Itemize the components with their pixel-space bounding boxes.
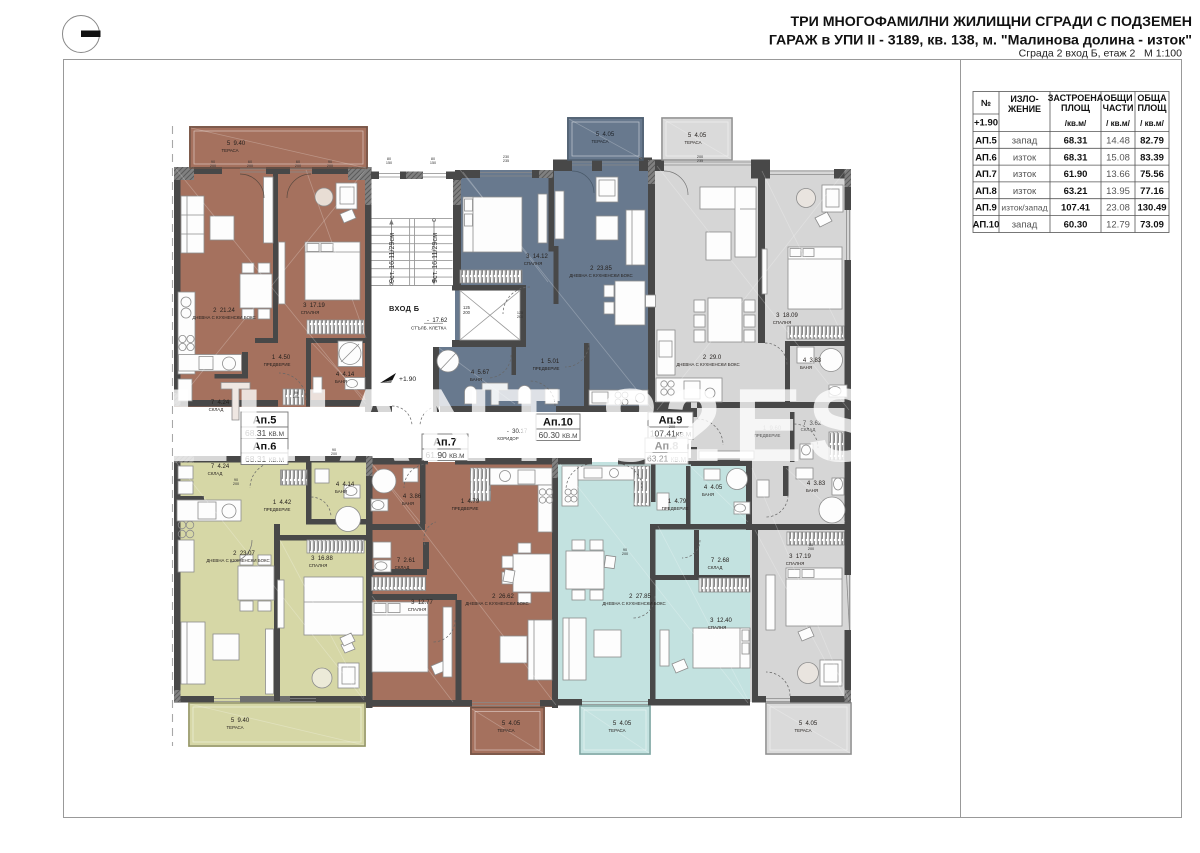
svg-text:2 23.07: 2 23.07: [233, 551, 255, 557]
svg-text:СТЪЛБ. КЛЕТКА: СТЪЛБ. КЛЕТКА: [411, 326, 447, 331]
svg-text:14.48: 14.48: [1106, 136, 1130, 147]
svg-text:82.79: 82.79: [1140, 136, 1164, 147]
svg-text:200: 200: [327, 164, 333, 168]
svg-text:5 4.05: 5 4.05: [799, 721, 818, 727]
svg-text:150: 150: [386, 161, 392, 165]
svg-text:60.30: 60.30: [1064, 220, 1088, 231]
svg-text:изток: изток: [1013, 169, 1037, 180]
svg-text:235: 235: [697, 159, 703, 163]
svg-text:ПЛОЩ: ПЛОЩ: [1061, 103, 1091, 113]
svg-text:1 4.50: 1 4.50: [272, 355, 291, 361]
svg-text:63.21: 63.21: [1064, 186, 1088, 197]
svg-text:ТЕРАСА: ТЕРАСА: [497, 728, 514, 733]
svg-text:СПАЛНЯ: СПАЛНЯ: [786, 561, 805, 566]
svg-text:3 17.19: 3 17.19: [789, 554, 811, 560]
svg-text:ПРЕДВЕРИЕ: ПРЕДВЕРИЕ: [264, 507, 291, 512]
svg-text:3 16.88: 3 16.88: [311, 556, 333, 562]
svg-text:2 29.0: 2 29.0: [703, 355, 722, 361]
svg-text:ALLIANT: ALLIANT: [86, 368, 566, 484]
svg-text:200: 200: [517, 315, 523, 319]
svg-text:ДНЕВНА С КУХНЕНСКИ БОКС: ДНЕВНА С КУХНЕНСКИ БОКС: [192, 315, 255, 320]
svg-text:ТЕРАСА: ТЕРАСА: [608, 728, 625, 733]
svg-text:13.95: 13.95: [1106, 186, 1130, 197]
svg-text:12.79: 12.79: [1106, 220, 1130, 231]
svg-text:ОБЩИ: ОБЩИ: [1103, 93, 1132, 103]
svg-text:АП.8: АП.8: [975, 186, 997, 197]
svg-text:ЗАСТРОЕНА: ЗАСТРОЕНА: [1048, 93, 1104, 103]
svg-text:200: 200: [295, 164, 301, 168]
svg-text:ГАРАЖ в УПИ II - 3189, кв. 138: ГАРАЖ в УПИ II - 3189, кв. 138, м. "Мали…: [769, 33, 1192, 49]
svg-text:200: 200: [622, 552, 628, 556]
svg-text:+1.90: +1.90: [974, 118, 998, 129]
svg-text:68.31: 68.31: [1064, 152, 1088, 163]
svg-text:ЧАСТИ: ЧАСТИ: [1103, 103, 1134, 113]
svg-text:АП.9: АП.9: [975, 203, 997, 214]
svg-text:ТЕРАСА: ТЕРАСА: [684, 140, 701, 145]
svg-text:2 27.85: 2 27.85: [629, 594, 651, 600]
svg-text:83.39: 83.39: [1140, 152, 1164, 163]
svg-text:1 4.42: 1 4.42: [273, 500, 292, 506]
svg-text:2 23.85: 2 23.85: [590, 266, 612, 272]
svg-text:СПАЛНЯ: СПАЛНЯ: [408, 607, 427, 612]
svg-text:15.08: 15.08: [1106, 152, 1130, 163]
svg-text:ПРЕДВЕРИЕ: ПРЕДВЕРИЕ: [452, 506, 479, 511]
svg-text:СПАЛНЯ: СПАЛНЯ: [301, 310, 320, 315]
svg-text:7 2.68: 7 2.68: [711, 558, 730, 564]
svg-text:1 5.01: 1 5.01: [541, 359, 560, 365]
svg-text:изток: изток: [1013, 186, 1037, 197]
svg-text:2 26.62: 2 26.62: [492, 594, 514, 600]
svg-text:235: 235: [503, 159, 509, 163]
svg-text:73.09: 73.09: [1140, 220, 1164, 231]
svg-text:ДНЕВНА С КУХНЕНСКИ БОКС: ДНЕВНА С КУХНЕНСКИ БОКС: [676, 362, 739, 367]
svg-text:23.08: 23.08: [1106, 203, 1130, 214]
svg-text:4 3.83: 4 3.83: [803, 358, 822, 364]
svg-text:3 12.40: 3 12.40: [710, 618, 732, 624]
svg-text:2 21.24: 2 21.24: [213, 308, 235, 314]
svg-text:4 3.86: 4 3.86: [403, 494, 422, 500]
svg-text:ПРЕДВЕРИЕ: ПРЕДВЕРИЕ: [662, 506, 689, 511]
svg-text:5 9.40: 5 9.40: [231, 718, 250, 724]
svg-text:4 4.05: 4 4.05: [704, 485, 723, 491]
svg-text:ПРЕДВЕРИЕ: ПРЕДВЕРИЕ: [264, 362, 291, 367]
svg-text:130.49: 130.49: [1137, 203, 1166, 214]
svg-text:82: 82: [601, 368, 727, 484]
svg-text:СПАЛНЯ: СПАЛНЯ: [309, 563, 328, 568]
svg-text:ТЕРАСА: ТЕРАСА: [794, 728, 811, 733]
svg-text:3 18.09: 3 18.09: [776, 313, 798, 319]
svg-text:ТЕРАСА: ТЕРАСА: [591, 139, 608, 144]
svg-text:7 2.61: 7 2.61: [397, 558, 416, 564]
svg-text:61.90: 61.90: [1064, 169, 1088, 180]
svg-text:75.56: 75.56: [1140, 169, 1164, 180]
svg-text:ДНЕВНА С КУХНЕНСКИ БОКС: ДНЕВНА С КУХНЕНСКИ БОКС: [206, 558, 269, 563]
svg-text:/ кв.м/: / кв.м/: [1140, 119, 1165, 128]
svg-text:ТЕРАСА: ТЕРАСА: [221, 148, 238, 153]
svg-text:150: 150: [430, 161, 436, 165]
svg-text:изток/запад: изток/запад: [1001, 203, 1047, 213]
svg-text:ДНЕВНА С КУХНЕНСКИ БОКС: ДНЕВНА С КУХНЕНСКИ БОКС: [602, 601, 665, 606]
svg-text:200: 200: [463, 310, 471, 315]
svg-text:Сграда 2 вход Б, етаж 2 М 1:: Сграда 2 вход Б, етаж 2 М 1:100: [1019, 48, 1182, 60]
svg-text:БАНЯ: БАНЯ: [402, 501, 414, 506]
svg-text:СПАЛНЯ: СПАЛНЯ: [708, 625, 727, 630]
svg-text:13.66: 13.66: [1106, 169, 1130, 180]
svg-text:5 9.40: 5 9.40: [227, 141, 246, 147]
svg-text:200: 200: [247, 164, 253, 168]
svg-text:3 14.12: 3 14.12: [526, 254, 548, 260]
svg-text:ДНЕВНА С КУХНЕНСКИ БОКС: ДНЕВНА С КУХНЕНСКИ БОКС: [569, 273, 632, 278]
svg-text:запад: запад: [1012, 220, 1038, 231]
svg-text:1 4.79: 1 4.79: [668, 499, 687, 505]
svg-text:3 17.19: 3 17.19: [303, 303, 325, 309]
svg-text:СПАЛНЯ: СПАЛНЯ: [524, 261, 543, 266]
svg-text:5 4.05: 5 4.05: [688, 133, 707, 139]
svg-text:СКЛАД: СКЛАД: [708, 565, 723, 570]
svg-text:БАНЯ: БАНЯ: [335, 489, 347, 494]
svg-text:107.41: 107.41: [1061, 203, 1091, 214]
svg-text:АП.7: АП.7: [975, 169, 997, 180]
svg-text:3 12.77: 3 12.77: [411, 600, 433, 606]
svg-text:ТЕРАСА: ТЕРАСА: [226, 725, 243, 730]
svg-text:1 4.79: 1 4.79: [461, 499, 480, 505]
svg-text:БАНЯ: БАНЯ: [702, 492, 714, 497]
svg-text:ОБЩА: ОБЩА: [1137, 93, 1167, 103]
svg-text:5 4.05: 5 4.05: [613, 721, 632, 727]
svg-text:БАНЯ: БАНЯ: [806, 488, 818, 493]
svg-text:СКЛАД: СКЛАД: [395, 565, 410, 570]
svg-text:АП.5: АП.5: [975, 136, 997, 147]
svg-text:АП.10: АП.10: [973, 220, 1000, 231]
svg-text:68.31: 68.31: [1064, 136, 1088, 147]
svg-text:запад: запад: [1012, 136, 1038, 147]
svg-text:СПАЛНЯ: СПАЛНЯ: [773, 320, 792, 325]
svg-text:изток: изток: [1013, 152, 1037, 163]
svg-text:№: №: [981, 98, 991, 108]
svg-text:ИЗЛО-: ИЗЛО-: [1010, 94, 1038, 104]
svg-text:ПЛОЩ: ПЛОЩ: [1138, 103, 1168, 113]
svg-text:9ст. 16.11/29см: 9ст. 16.11/29см: [430, 233, 439, 283]
svg-text:ДНЕВНА С КУХНЕНСКИ БОКС: ДНЕВНА С КУХНЕНСКИ БОКС: [465, 601, 528, 606]
svg-text:ВХОД Б: ВХОД Б: [389, 304, 420, 313]
svg-text:5 4.05: 5 4.05: [596, 132, 615, 138]
svg-text:/кв.м/: /кв.м/: [1065, 119, 1087, 128]
svg-text:ЖЕНИЕ: ЖЕНИЕ: [1007, 104, 1041, 114]
svg-text:200: 200: [210, 164, 216, 168]
svg-text:77.16: 77.16: [1140, 186, 1164, 197]
svg-text:200: 200: [808, 547, 814, 551]
svg-text:АП.6: АП.6: [975, 152, 997, 163]
svg-text:5 4.05: 5 4.05: [502, 721, 521, 727]
svg-text:/ кв.м/: / кв.м/: [1106, 119, 1131, 128]
svg-text:ТРИ МНОГОФАМИЛНИ ЖИЛИЩНИ СГРАД: ТРИ МНОГОФАМИЛНИ ЖИЛИЩНИ СГРАДИ С ПОДЗЕМ…: [790, 14, 1192, 30]
svg-text:9ст. 16.11/29см: 9ст. 16.11/29см: [387, 233, 396, 283]
svg-text:ES: ES: [733, 368, 882, 484]
